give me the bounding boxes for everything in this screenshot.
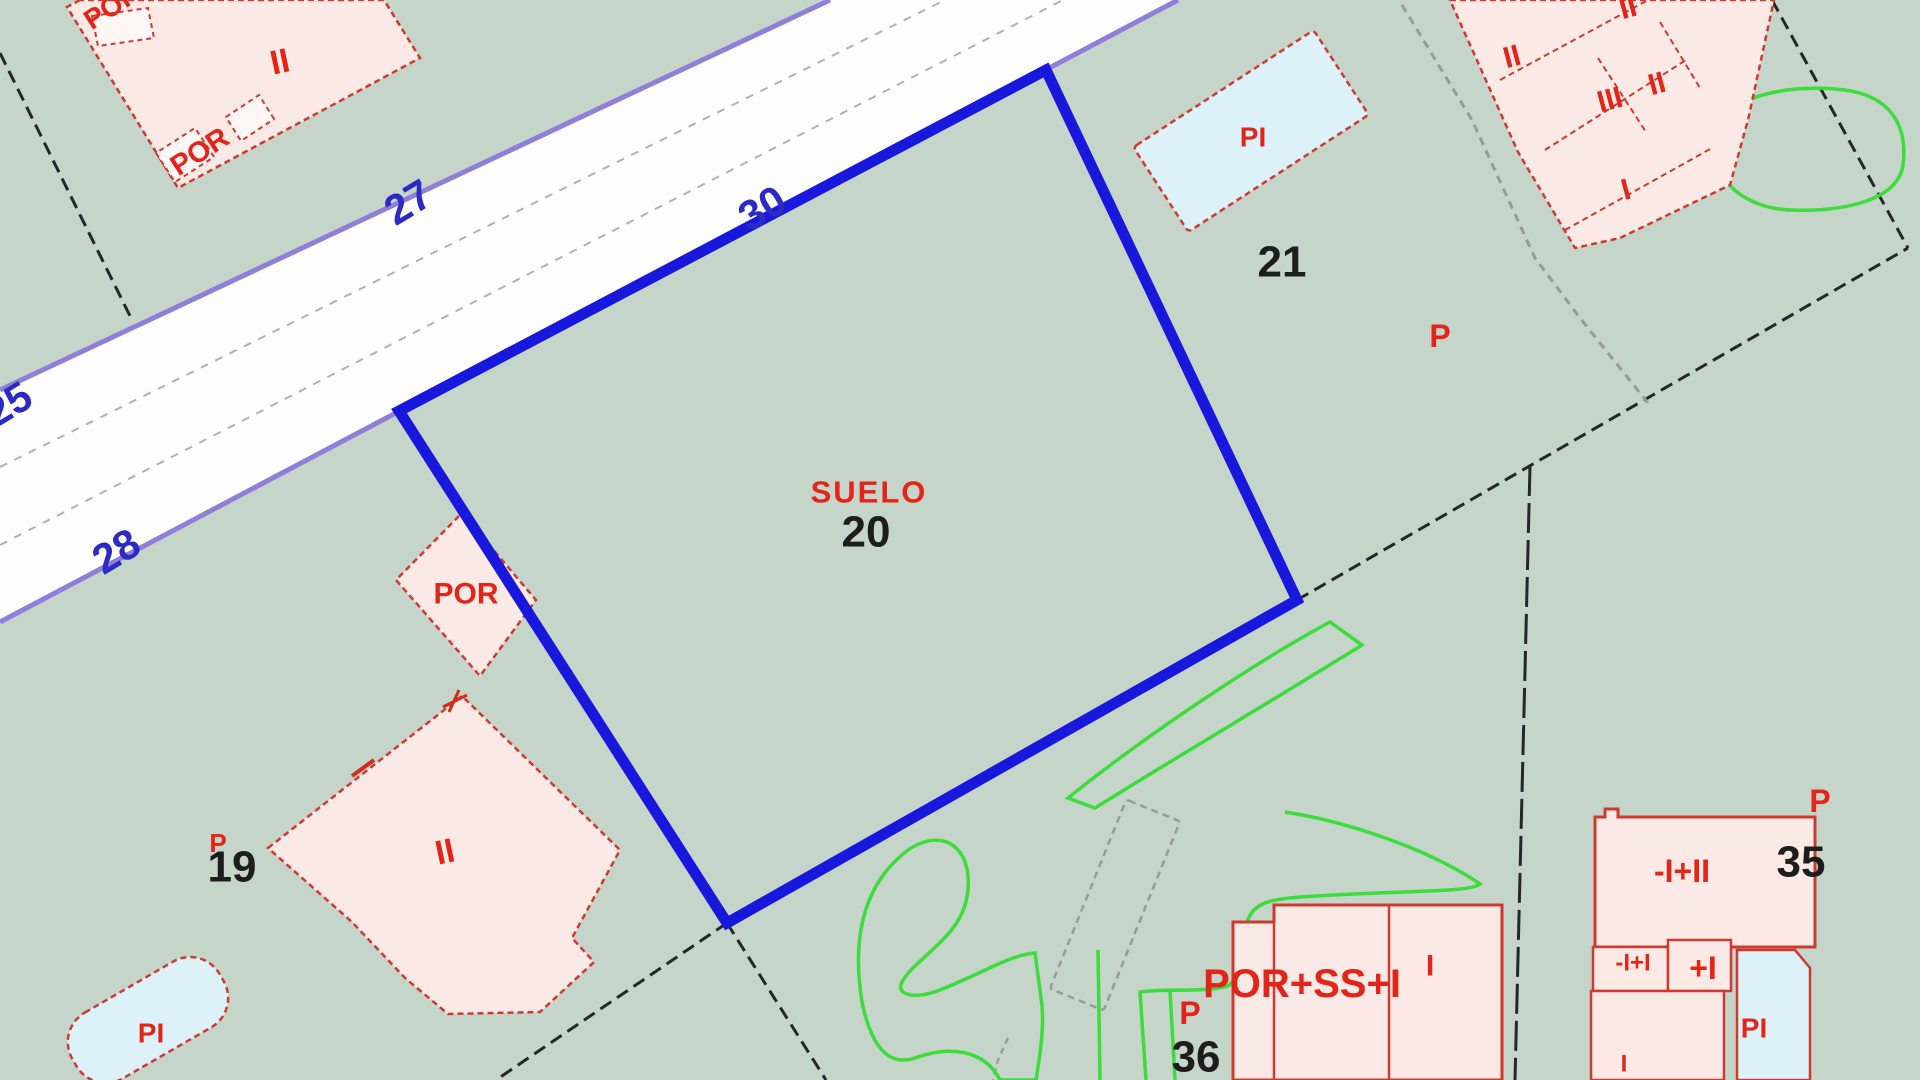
marker-p-parcel35: P (1809, 783, 1830, 819)
marker-p-parcel19: P (209, 828, 226, 858)
parcel-number-35: 35 (1777, 838, 1826, 887)
cadastral-map-viewport[interactable]: 252730282021193536SUELOPORPORPORPOR+SS+I… (0, 0, 1920, 1080)
parcel-boundary-black-f (727, 923, 826, 1080)
building-label-por-parcel20: POR (433, 578, 498, 611)
parcel-number-36: 36 (1172, 1033, 1221, 1080)
parcel-boundary-black-d (1515, 466, 1530, 1080)
building-cluster-northeast (1450, 0, 1774, 248)
pool-label-pi-parcel21: PI (1240, 122, 1266, 153)
cadastral-map-canvas[interactable]: 252730282021193536SUELOPORPORPORPOR+SS+I… (0, 0, 1920, 1080)
pool-southwest (55, 945, 240, 1080)
parcel-number-21: 21 (1258, 238, 1307, 287)
vegetation-outline-3 (858, 840, 1042, 1080)
parcel-boundary-black-a (0, 53, 132, 320)
landuse-label-suelo: SUELO (811, 475, 928, 510)
floors-label-35-annex-c: I (1621, 1051, 1628, 1078)
floors-label-35-main: -I+II (1654, 853, 1710, 889)
building-35-annex-c (1591, 991, 1724, 1080)
pool-label-pi-parcel35: PI (1741, 1013, 1767, 1044)
building-label-i-36: I (1426, 950, 1434, 983)
pool-label-pi-southwest: PI (138, 1018, 164, 1049)
floors-label-35-annex-b: +I (1689, 950, 1717, 986)
parcel-boundary-black-b (1297, 248, 1908, 600)
building-label-por-ss-i: POR+SS+I (1203, 962, 1401, 1006)
gray-casing-shed (1050, 800, 1180, 1011)
vegetation-strand-3 (1098, 950, 1100, 1080)
floors-label-35-annex-a: -I+I (1615, 950, 1650, 977)
parcel-number-20: 20 (842, 508, 891, 557)
marker-p-parcel36: P (1179, 995, 1200, 1031)
marker-p-parcel21: P (1429, 318, 1450, 354)
